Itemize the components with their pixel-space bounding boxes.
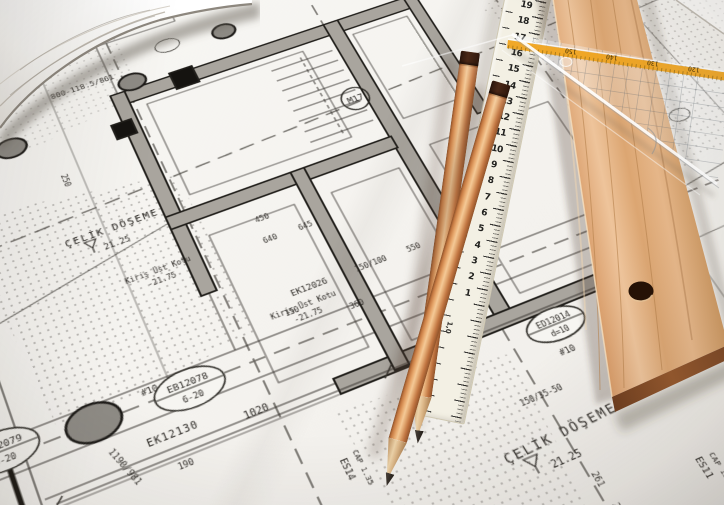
edge-glint <box>402 35 512 66</box>
photo-blueprint-with-drafting-tools: ÇELİK DÖŞEME 21.25 ÇELİK DÖŞEME 21.25 Ki… <box>0 0 724 505</box>
scale-number: 120 <box>687 64 700 74</box>
pencil-1-butt-end <box>459 51 480 67</box>
scale-number: 130 <box>646 58 659 68</box>
scale-number: 150 <box>564 46 577 56</box>
pencil-2-graphite-point <box>382 472 394 487</box>
set-square-bubble <box>560 58 572 67</box>
scale-number: 140 <box>605 52 618 62</box>
under-sheet-edge <box>676 0 724 34</box>
tools-overlay: 150 140 130 120 <box>0 0 724 505</box>
pencil-1-graphite-point <box>413 430 424 444</box>
